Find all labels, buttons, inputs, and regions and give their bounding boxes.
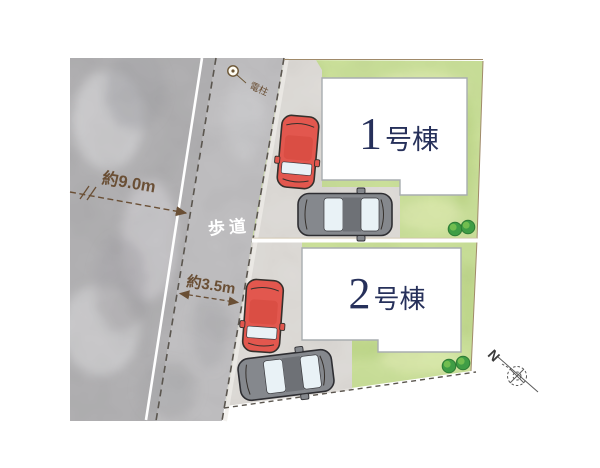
building-1-suffix: 号棟 (385, 125, 439, 155)
red-car-icon (238, 279, 288, 354)
tree-icon (461, 220, 475, 234)
sidewalk-label: 歩道 (207, 216, 250, 239)
building-1-number: 1 (359, 108, 382, 159)
site-plan-page: 1号棟 2号棟 約9.0m 約3.5m 歩道 電柱 N (0, 0, 600, 468)
gray-car-icon (298, 188, 392, 241)
tree-icon (442, 359, 456, 373)
tree-icon (448, 222, 462, 236)
tree-icon (456, 356, 470, 370)
building-2-suffix: 号棟 (373, 285, 425, 314)
site-plan-drawing: 1号棟 2号棟 約9.0m 約3.5m 歩道 電柱 N (0, 0, 600, 468)
building-2-number: 2 (348, 269, 370, 318)
